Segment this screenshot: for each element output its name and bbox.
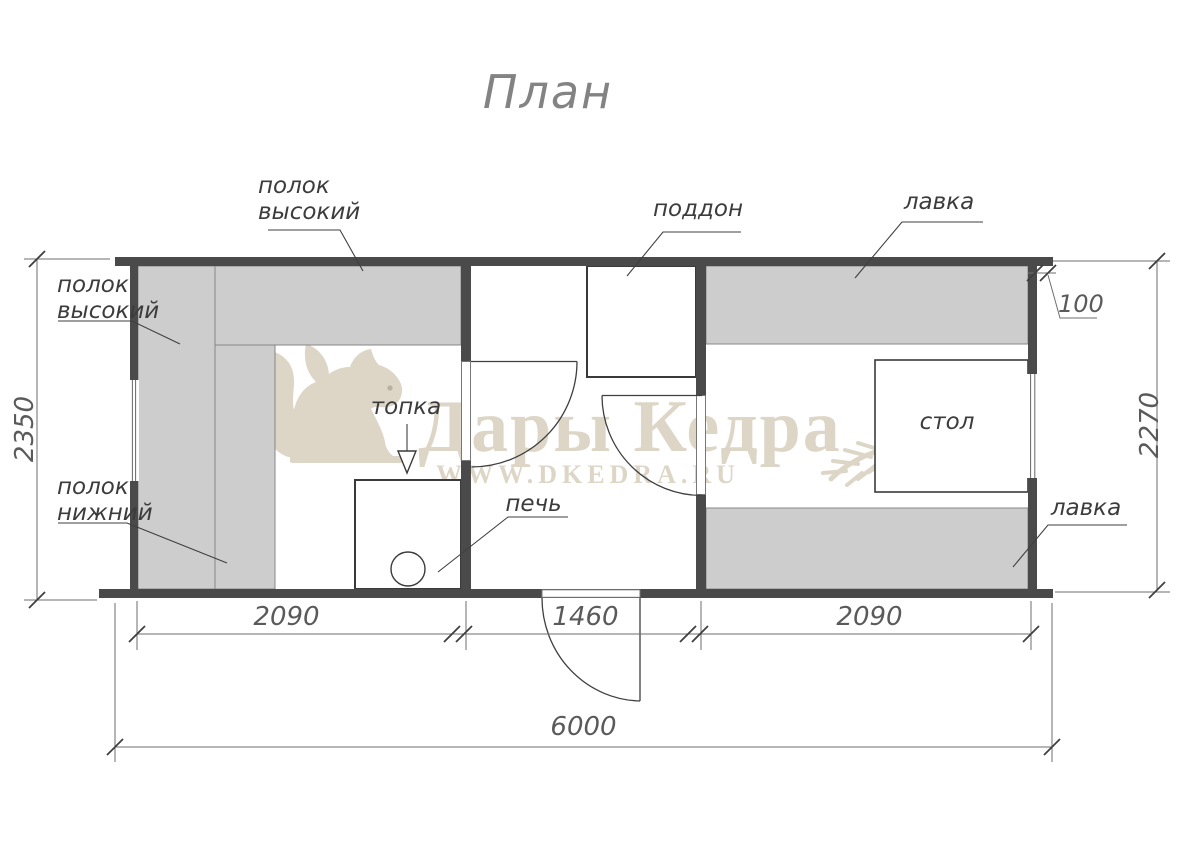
label-table: стол xyxy=(903,409,991,435)
label-shelf-high-top: полок высокий xyxy=(258,173,360,225)
label-line: высокий xyxy=(258,199,360,225)
rest-bench-top xyxy=(706,266,1028,344)
drawing-title: План xyxy=(448,66,648,118)
label-line: нижний xyxy=(57,500,153,526)
dim-steam-room-width: 2090 xyxy=(234,603,339,633)
partition-rest-upper xyxy=(696,266,706,395)
dim-wall-overhang: 100 xyxy=(1058,291,1104,318)
window-right-gap xyxy=(1027,374,1038,478)
label-line: полок xyxy=(57,474,153,500)
label-line: полок xyxy=(258,173,360,199)
dim-left-depth: 2350 xyxy=(11,379,41,479)
watermark-url: WWW.DKEDRA.RU xyxy=(436,460,740,489)
label-shelf-low: полок нижний xyxy=(57,474,153,526)
label-shelf-high-left: полок высокий xyxy=(57,272,159,324)
watermark: Дары Кедра WWW.DKEDRA.RU xyxy=(266,344,893,489)
partition-rest-lower xyxy=(696,495,706,589)
watermark-brand: Дары Кедра xyxy=(418,386,842,468)
partition-steam-lower xyxy=(461,461,471,589)
dim-overall-width: 6000 xyxy=(531,713,636,743)
label-line: полок xyxy=(57,272,159,298)
squirrel-eye xyxy=(387,385,392,390)
door-frame-rest xyxy=(697,396,706,495)
shower-tray xyxy=(587,266,696,377)
dim-rest-room-width: 2090 xyxy=(817,603,922,633)
dim-washing-room-width: 1460 xyxy=(533,603,638,633)
label-firebox: топка xyxy=(366,394,446,420)
dim-right-depth: 2270 xyxy=(1136,375,1166,475)
squirrel-branch-bar xyxy=(290,456,412,463)
label-shower-tray: поддон xyxy=(653,196,743,222)
label-bench-bottom: лавка xyxy=(1040,495,1132,521)
label-bench-top: лавка xyxy=(894,189,984,215)
door-frame-steam xyxy=(462,362,471,461)
rest-bench-bottom xyxy=(706,508,1028,589)
door-frame-entry xyxy=(542,590,640,598)
label-stove: печь xyxy=(496,491,571,517)
partition-steam-upper xyxy=(461,266,471,361)
steam-shelf-high-top xyxy=(215,266,461,345)
stove-burner xyxy=(391,552,425,586)
window-left-gap xyxy=(129,380,139,481)
floor-plan-drawing: Дары Кедра WWW.DKEDRA.RU xyxy=(0,0,1200,848)
label-line: высокий xyxy=(57,298,159,324)
wall-top xyxy=(115,257,1053,266)
steam-shelf-low xyxy=(215,345,275,589)
